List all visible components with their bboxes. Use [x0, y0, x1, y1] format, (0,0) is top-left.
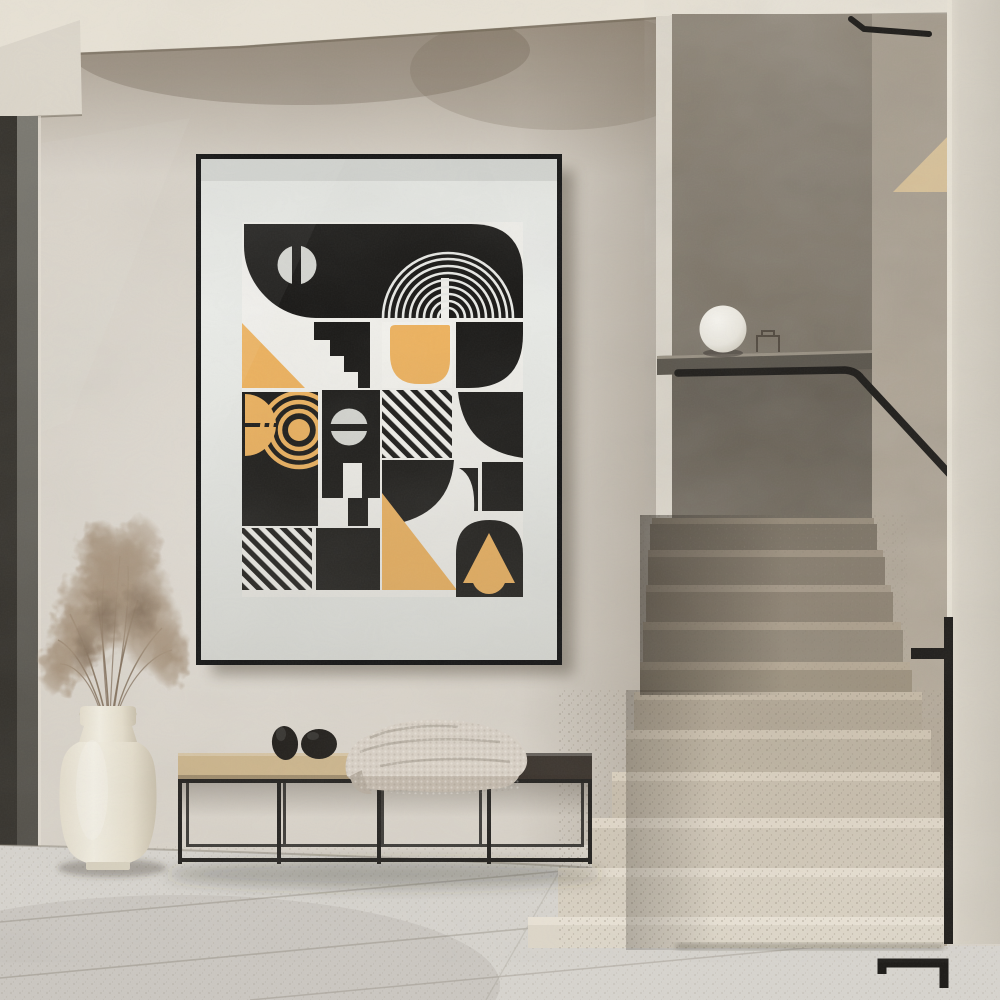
photo-grain — [0, 0, 1000, 1000]
interior-photo: Interior hallway photograph with framed … — [0, 0, 1000, 1000]
scene-canvas: Interior hallway photograph with framed … — [0, 0, 1000, 1000]
